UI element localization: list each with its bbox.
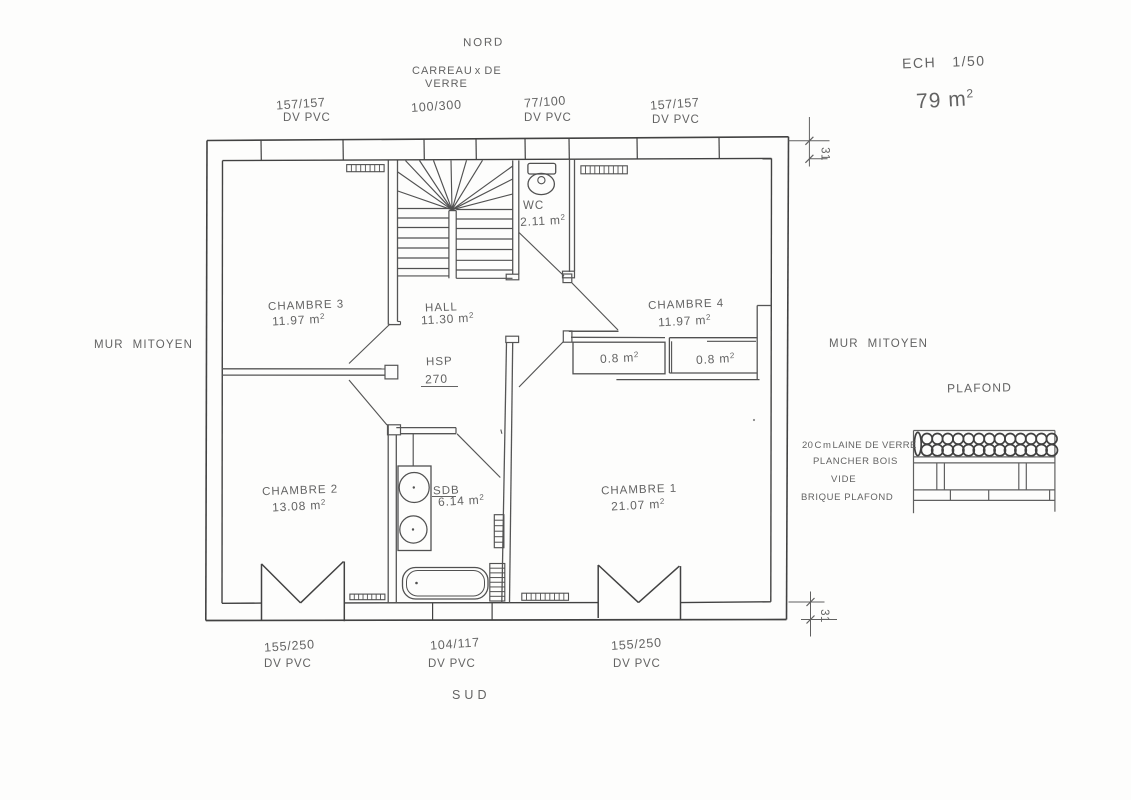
- svg-text:PLANCHER BOIS: PLANCHER BOIS: [813, 456, 898, 467]
- svg-text:DV PVC: DV PVC: [652, 114, 700, 126]
- svg-text:11.97 m2: 11.97 m2: [658, 313, 712, 330]
- svg-text:DV PVC: DV PVC: [428, 658, 476, 670]
- svg-text:VERRE: VERRE: [425, 78, 468, 90]
- svg-text:DV PVC: DV PVC: [264, 658, 312, 670]
- svg-text:DV PVC: DV PVC: [524, 112, 572, 124]
- svg-text:MUR MITOYEN: MUR MITOYEN: [829, 338, 928, 350]
- svg-text:20 C m LAINE DE VERRE: 20 C m LAINE DE VERRE: [802, 440, 917, 451]
- svg-text:77/100: 77/100: [524, 94, 567, 111]
- svg-text:31: 31: [818, 609, 830, 623]
- svg-text:13.08 m2: 13.08 m2: [272, 498, 327, 515]
- svg-text:0.8 m2: 0.8 m2: [600, 350, 640, 366]
- svg-text:MUR MITOYEN: MUR MITOYEN: [94, 339, 193, 351]
- svg-text:CARREAU x DE: CARREAU x DE: [412, 65, 502, 77]
- svg-text:S U D: S U D: [452, 688, 488, 702]
- svg-text:HSP: HSP: [426, 355, 453, 368]
- svg-text:DV PVC: DV PVC: [283, 112, 331, 124]
- svg-text:ECH 1/50: ECH 1/50: [902, 52, 986, 71]
- svg-text:31: 31: [819, 147, 831, 161]
- svg-text:DV PVC: DV PVC: [613, 658, 661, 670]
- svg-text:6.14 m2: 6.14 m2: [438, 493, 485, 509]
- svg-text:PLAFOND: PLAFOND: [947, 380, 1012, 395]
- svg-text:79 m2: 79 m2: [915, 86, 975, 113]
- svg-text:0.8 m2: 0.8 m2: [696, 351, 736, 367]
- svg-text:11.97 m2: 11.97 m2: [272, 312, 326, 329]
- svg-text:WC: WC: [523, 200, 544, 212]
- svg-text:21.07 m2: 21.07 m2: [611, 497, 666, 514]
- svg-text:BRIQUE PLAFOND: BRIQUE PLAFOND: [801, 492, 893, 503]
- svg-text:2.11 m2: 2.11 m2: [520, 213, 567, 229]
- svg-text:11.30 m2: 11.30 m2: [421, 311, 475, 328]
- svg-text:VIDE: VIDE: [831, 474, 856, 485]
- svg-text:NORD: NORD: [463, 37, 504, 50]
- svg-text:270: 270: [425, 372, 449, 387]
